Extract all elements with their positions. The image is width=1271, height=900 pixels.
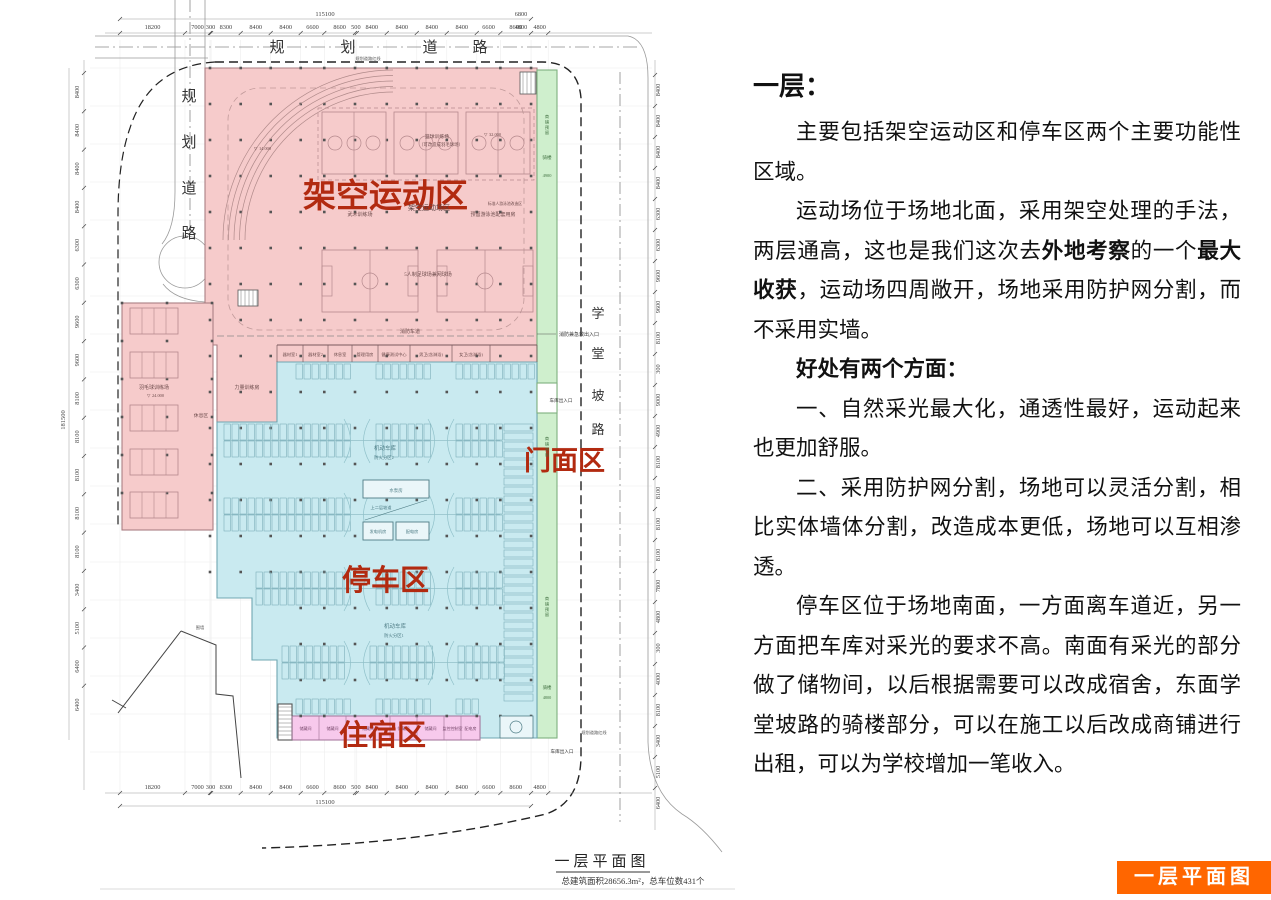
column-dot bbox=[239, 463, 242, 466]
column-dot bbox=[445, 715, 448, 718]
west-road-merge bbox=[163, 284, 205, 302]
description-panel: 一层： 主要包括架空运动区和停车区两个主要功能性区域。运动场位于场地北面，采用架… bbox=[753, 66, 1241, 785]
column-dot bbox=[209, 535, 212, 538]
column-dot bbox=[385, 499, 388, 502]
column-dot bbox=[530, 175, 533, 178]
column-dot bbox=[323, 139, 326, 142]
column-dot bbox=[299, 643, 302, 646]
dim-value: 8400 bbox=[455, 24, 468, 31]
column-dot bbox=[499, 535, 502, 538]
plan-annotation: 配电房 bbox=[406, 528, 419, 535]
column-dot bbox=[475, 427, 478, 430]
dim-value: 4000 bbox=[655, 673, 662, 686]
column-dot bbox=[445, 571, 448, 574]
column-dot bbox=[239, 139, 242, 142]
plan-annotation: 休息区 bbox=[194, 412, 209, 419]
dim-value: 5100 bbox=[655, 766, 662, 779]
column-dot bbox=[499, 103, 502, 106]
west-road-name: 路 bbox=[181, 225, 196, 242]
column-dot bbox=[239, 571, 242, 574]
fire-entrance-label: 消防兼急救出入口 bbox=[559, 331, 599, 338]
column-dot bbox=[121, 454, 124, 457]
column-dot bbox=[415, 643, 418, 646]
column-dot bbox=[239, 319, 242, 322]
column-dot bbox=[121, 492, 124, 495]
dim-value: 8100 bbox=[74, 507, 81, 520]
column-dot bbox=[354, 607, 357, 610]
column-dot bbox=[323, 427, 326, 430]
column-dot bbox=[530, 211, 533, 214]
column-dot bbox=[121, 340, 124, 343]
plan-annotation: 4900 bbox=[543, 173, 553, 178]
dim-value: 8100 bbox=[655, 487, 662, 500]
dim-value: 9600 bbox=[655, 301, 662, 314]
dim-value: 9600 bbox=[74, 316, 81, 329]
column-dot bbox=[239, 67, 242, 70]
site-boundary-southwest bbox=[112, 631, 241, 778]
column-dot bbox=[121, 378, 124, 381]
dim-total: 115100 bbox=[315, 799, 334, 806]
column-dot bbox=[299, 391, 302, 394]
column-dot bbox=[499, 67, 502, 70]
column-dot bbox=[323, 463, 326, 466]
column-dot bbox=[530, 319, 533, 322]
column-dot bbox=[269, 427, 272, 430]
dim-value: 6300 bbox=[655, 208, 662, 221]
column-dot bbox=[323, 715, 326, 718]
plan-annotation: 发电机房 bbox=[370, 528, 387, 535]
dorm-zone-label: 住宿区 bbox=[339, 718, 426, 752]
dim-value: 8100 bbox=[74, 469, 81, 482]
column-dot bbox=[323, 67, 326, 70]
column-dot bbox=[269, 391, 272, 394]
service-room-label: 器材室2 bbox=[308, 351, 323, 358]
column-dot bbox=[499, 319, 502, 322]
column-dot bbox=[354, 283, 357, 286]
dim-value: 8400 bbox=[655, 84, 662, 97]
dim-value: 7000 bbox=[191, 24, 204, 31]
plan-annotation: 32.000 bbox=[489, 132, 502, 137]
west-road-name: 规 bbox=[181, 88, 196, 105]
column-dot bbox=[323, 535, 326, 538]
column-dot bbox=[499, 427, 502, 430]
column-dot bbox=[299, 283, 302, 286]
column-dot bbox=[299, 427, 302, 430]
floor-plan: 器材室1器材室2休息室管理用房健康测试中心男卫(含淋浴)女卫(含淋浴)储藏间储藏… bbox=[0, 0, 745, 895]
column-dot bbox=[530, 247, 533, 250]
column-dot bbox=[385, 391, 388, 394]
column-dot bbox=[209, 103, 212, 106]
column-dot bbox=[166, 302, 169, 305]
text-run: 二、采用防护网分割，场地可以灵活分割，相比实体墙体分割，改造成本更低，场地可以互… bbox=[753, 476, 1241, 579]
dim-value: 8600 bbox=[333, 24, 346, 31]
column-dot bbox=[299, 607, 302, 610]
article-body: 主要包括架空运动区和停车区两个主要功能性区域。运动场位于场地北面，采用架空处理的… bbox=[753, 113, 1241, 785]
parking-zone-label: 停车区 bbox=[342, 563, 429, 597]
dim-value: 8400 bbox=[365, 784, 378, 791]
column-dot bbox=[445, 247, 448, 250]
plan-annotation: 规划道路红线 bbox=[355, 55, 381, 62]
column-dot bbox=[209, 463, 212, 466]
dim-value: 8100 bbox=[74, 545, 81, 558]
dorm-room-label: 储藏间 bbox=[425, 725, 437, 731]
plan-caption-stats: 总建筑面积28656.3m²，总车位数431个 bbox=[561, 876, 705, 886]
plan-annotation: 架空运动场区 bbox=[408, 203, 450, 212]
dim-value: 300 bbox=[655, 364, 662, 373]
dim-value: 4800 bbox=[533, 24, 546, 31]
column-dot bbox=[530, 571, 533, 574]
paragraph: 一、自然采光最大化，通透性最好，运动起来也更加舒服。 bbox=[753, 390, 1241, 469]
dim-value: 7800 bbox=[655, 580, 662, 593]
column-dot bbox=[299, 319, 302, 322]
column-dot bbox=[499, 463, 502, 466]
east-road-name: 学 bbox=[591, 306, 604, 321]
column-dot bbox=[475, 67, 478, 70]
column-dot bbox=[269, 103, 272, 106]
plan-annotation: 水泵房 bbox=[389, 487, 403, 494]
column-dot bbox=[475, 175, 478, 178]
column-dot bbox=[269, 67, 272, 70]
column-dot bbox=[211, 340, 214, 343]
column-dot bbox=[385, 67, 388, 70]
column-dot bbox=[354, 67, 357, 70]
shop-reserve-label: 留 bbox=[545, 611, 549, 618]
column-dot bbox=[445, 319, 448, 322]
dim-value: 8100 bbox=[655, 332, 662, 345]
column-dot bbox=[415, 247, 418, 250]
paragraph: 主要包括架空运动区和停车区两个主要功能性区域。 bbox=[753, 113, 1241, 192]
dim-value: 8100 bbox=[74, 392, 81, 405]
column-dot bbox=[499, 139, 502, 142]
column-dot bbox=[445, 103, 448, 106]
column-dot bbox=[415, 463, 418, 466]
dim-value: 6600 bbox=[306, 24, 319, 31]
column-dot bbox=[269, 283, 272, 286]
dim-value: 6400 bbox=[74, 699, 81, 712]
plan-annotation: 羽毛球训练场 bbox=[139, 384, 169, 391]
column-dot bbox=[299, 175, 302, 178]
column-dot bbox=[445, 499, 448, 502]
plan-caption-title: 一层平面图 bbox=[554, 853, 649, 870]
column-dot bbox=[354, 103, 357, 106]
column-dot bbox=[354, 715, 357, 718]
column-dot bbox=[530, 103, 533, 106]
dim-value: 8400 bbox=[249, 24, 262, 31]
dim-value: 6300 bbox=[74, 277, 81, 290]
column-dot bbox=[530, 283, 533, 286]
column-dot bbox=[354, 427, 357, 430]
plan-annotation: 防火分区1 bbox=[384, 632, 404, 639]
column-dot bbox=[475, 319, 478, 322]
column-dot bbox=[323, 643, 326, 646]
stair-block bbox=[278, 704, 292, 740]
column-dot bbox=[239, 535, 242, 538]
column-dot bbox=[385, 247, 388, 250]
north-road-name: 划 bbox=[340, 39, 355, 56]
column-dot bbox=[323, 499, 326, 502]
column-dot bbox=[121, 416, 124, 419]
dim-value: 6300 bbox=[655, 239, 662, 252]
column-dot bbox=[299, 211, 302, 214]
column-dot bbox=[475, 391, 478, 394]
service-room-label: 休息室 bbox=[334, 351, 347, 358]
column-dot bbox=[354, 499, 357, 502]
column-dot bbox=[415, 499, 418, 502]
column-dot bbox=[299, 67, 302, 70]
bold-run: 外地考察 bbox=[1042, 239, 1131, 263]
text-run: ，运动场四周敞开，场地采用防护网分割，而不采用实墙。 bbox=[753, 278, 1241, 342]
dim-value: 500 bbox=[351, 24, 360, 31]
text-run: 一、自然采光最大化，通透性最好，运动起来也更加舒服。 bbox=[753, 397, 1241, 461]
plan-annotation: 机动车库 bbox=[374, 444, 397, 452]
paragraph: 二、采用防护网分割，场地可以灵活分割，相比实体墙体分割，改造成本更低，场地可以互… bbox=[753, 469, 1241, 588]
column-dot bbox=[475, 247, 478, 250]
article-heading: 一层： bbox=[753, 66, 1241, 103]
plan-annotation: 防火分区2 bbox=[374, 454, 394, 461]
west-road-name: 划 bbox=[181, 134, 196, 151]
column-dot bbox=[475, 607, 478, 610]
column-dot bbox=[211, 492, 214, 495]
plan-annotation: 骑楼 bbox=[542, 154, 552, 161]
column-dot bbox=[209, 139, 212, 142]
dim-value: 8600 bbox=[333, 784, 346, 791]
dim-value: 6800 bbox=[515, 11, 528, 18]
service-room-label: 健康测试中心 bbox=[381, 351, 407, 358]
column-dot bbox=[209, 175, 212, 178]
column-dot bbox=[530, 679, 533, 682]
column-dot bbox=[354, 463, 357, 466]
north-road-name: 规 bbox=[269, 39, 284, 56]
storefront-zone-label: 门面区 bbox=[524, 446, 605, 476]
plan-annotation: 上二层坡道 bbox=[371, 504, 393, 511]
dim-value: 6600 bbox=[482, 784, 495, 791]
plan-annotation: 14.000 bbox=[259, 146, 272, 151]
dim-value: 8400 bbox=[425, 784, 438, 791]
plan-annotation: 围墙 bbox=[196, 624, 204, 631]
plan-annotation: 规划道路红线 bbox=[581, 729, 607, 736]
column-dot bbox=[530, 391, 533, 394]
column-dot bbox=[269, 319, 272, 322]
shop-reserve-label: 留 bbox=[545, 451, 549, 458]
dim-value: 500 bbox=[351, 784, 360, 791]
north-road-name: 道 bbox=[422, 39, 437, 56]
plan-annotation: 车库出入口 bbox=[550, 397, 573, 404]
plan-annotation: 5人制足球场兼网球场 bbox=[404, 271, 452, 278]
column-dot bbox=[445, 391, 448, 394]
east-road-name: 路 bbox=[591, 422, 604, 437]
column-dot bbox=[299, 535, 302, 538]
dim-value: 6300 bbox=[74, 239, 81, 252]
column-dot bbox=[209, 499, 212, 502]
plan-annotation: 预留游泳池配套用房 bbox=[470, 211, 515, 218]
service-room-label: 男卫(含淋浴) bbox=[419, 351, 443, 358]
column-dot bbox=[530, 643, 533, 646]
column-dot bbox=[385, 715, 388, 718]
column-dot bbox=[445, 535, 448, 538]
column-dot bbox=[530, 535, 533, 538]
column-dot bbox=[445, 355, 448, 358]
dim-value: 5100 bbox=[74, 622, 81, 635]
column-dot bbox=[475, 103, 478, 106]
column-dot bbox=[299, 499, 302, 502]
column-dot bbox=[385, 427, 388, 430]
paragraph: 运动场位于场地北面，采用架空处理的手法，两层通高，这也是我们这次去外地考察的一个… bbox=[753, 192, 1241, 350]
dim-value: 4800 bbox=[515, 24, 528, 31]
column-dot bbox=[499, 391, 502, 394]
dim-value: 8400 bbox=[74, 162, 81, 175]
plan-annotation: 机动车库 bbox=[384, 622, 407, 630]
dorm-room-label: 配电房 bbox=[465, 725, 477, 731]
column-dot bbox=[211, 302, 214, 305]
dim-value: 300 bbox=[206, 24, 215, 31]
dim-value: 8300 bbox=[220, 24, 233, 31]
floor-plan-drawing: 器材室1器材室2休息室管理用房健康测试中心男卫(含淋浴)女卫(含淋浴)储藏间储藏… bbox=[0, 0, 745, 895]
dim-value: 4800 bbox=[533, 784, 546, 791]
column-dot bbox=[354, 679, 357, 682]
plan-annotation: 力量训练房 bbox=[234, 384, 259, 391]
column-dot bbox=[323, 355, 326, 358]
plan-annotation: 骑楼 bbox=[543, 684, 552, 691]
column-dot bbox=[530, 355, 533, 358]
dim-value: 18200 bbox=[145, 784, 161, 791]
column-dot bbox=[415, 139, 418, 142]
column-dot bbox=[209, 391, 212, 394]
slide-badge: 一层平面图 bbox=[1117, 861, 1271, 894]
text-run: 主要包括架空运动区和停车区两个主要功能性区域。 bbox=[753, 120, 1241, 184]
plan-annotation: 24.000 bbox=[152, 393, 165, 398]
column-dot bbox=[299, 247, 302, 250]
dim-value: 6600 bbox=[482, 24, 495, 31]
column-dot bbox=[269, 247, 272, 250]
dim-value: 3400 bbox=[74, 584, 81, 597]
column-dot bbox=[385, 319, 388, 322]
column-dot bbox=[475, 499, 478, 502]
paragraph: 停车区位于场地南面，一方面离车道近，另一方面把车库对采光的要求不高。南面有采光的… bbox=[753, 587, 1241, 785]
dim-value: 8400 bbox=[395, 24, 408, 31]
column-dot bbox=[269, 463, 272, 466]
plan-annotation: 车库出入口 bbox=[551, 748, 574, 755]
north-road-name: 路 bbox=[472, 39, 487, 56]
dorm-room-label: 储藏间 bbox=[300, 725, 312, 731]
dim-value: 4900 bbox=[655, 425, 662, 438]
dim-value: 8100 bbox=[655, 456, 662, 469]
plan-annotation: 4800 bbox=[543, 695, 551, 700]
column-dot bbox=[499, 607, 502, 610]
column-dot bbox=[385, 283, 388, 286]
column-dot bbox=[445, 643, 448, 646]
plan-annotation: 篮球训练场 bbox=[425, 133, 449, 140]
column-dot bbox=[499, 499, 502, 502]
column-dot bbox=[211, 416, 214, 419]
east-road-name: 堂 bbox=[591, 346, 604, 361]
column-dot bbox=[499, 643, 502, 646]
column-dot bbox=[209, 247, 212, 250]
column-dot bbox=[209, 427, 212, 430]
column-dot bbox=[239, 247, 242, 250]
column-dot bbox=[415, 319, 418, 322]
column-dot bbox=[299, 715, 302, 718]
dim-value: 300 bbox=[655, 643, 662, 652]
dim-value: 8400 bbox=[74, 124, 81, 137]
column-dot bbox=[323, 283, 326, 286]
dim-value: 8400 bbox=[279, 784, 292, 791]
dim-value: 8400 bbox=[655, 177, 662, 190]
column-dot bbox=[269, 355, 272, 358]
dim-value: 7000 bbox=[191, 784, 204, 791]
dorm-room-label: 监控控制室 bbox=[443, 725, 463, 731]
column-dot bbox=[354, 535, 357, 538]
column-dot bbox=[499, 355, 502, 358]
column-dot bbox=[530, 67, 533, 70]
column-dot bbox=[385, 607, 388, 610]
dim-value: 300 bbox=[206, 784, 215, 791]
dim-value: 8400 bbox=[74, 201, 81, 214]
column-dot bbox=[445, 463, 448, 466]
west-road-edge bbox=[162, 0, 175, 244]
column-dot bbox=[269, 499, 272, 502]
column-dot bbox=[445, 679, 448, 682]
column-dot bbox=[415, 355, 418, 358]
column-dot bbox=[323, 607, 326, 610]
west-road-name: 道 bbox=[181, 180, 196, 197]
column-dot bbox=[354, 319, 357, 322]
column-dot bbox=[475, 463, 478, 466]
column-dot bbox=[239, 355, 242, 358]
column-dot bbox=[415, 607, 418, 610]
column-dot bbox=[209, 211, 212, 214]
zones bbox=[122, 68, 557, 740]
dim-value: 8100 bbox=[655, 549, 662, 562]
dim-value: 8400 bbox=[365, 24, 378, 31]
text-run: 停车区位于场地南面，一方面离车道近，另一方面把车库对采光的要求不高。南面有采光的… bbox=[753, 594, 1241, 776]
plan-annotation: （可改造成羽毛球场） bbox=[419, 141, 463, 148]
column-dot bbox=[354, 391, 357, 394]
column-dot bbox=[239, 283, 242, 286]
column-dot bbox=[445, 607, 448, 610]
bold-run: 好处有两个方面： bbox=[796, 357, 968, 381]
dim-total: 115100 bbox=[315, 11, 334, 18]
column-dot bbox=[269, 211, 272, 214]
column-dot bbox=[385, 103, 388, 106]
column-dot bbox=[530, 499, 533, 502]
column-dot bbox=[323, 391, 326, 394]
column-dot bbox=[475, 535, 478, 538]
column-dot bbox=[166, 340, 169, 343]
service-room-label: 女卫(含淋浴) bbox=[459, 351, 483, 358]
dim-value: 8600 bbox=[509, 784, 522, 791]
east-road-name: 坡 bbox=[591, 388, 604, 403]
paragraph: 好处有两个方面： bbox=[753, 350, 1241, 390]
column-dot bbox=[385, 643, 388, 646]
dim-value: 6600 bbox=[306, 784, 319, 791]
column-dot bbox=[209, 319, 212, 322]
plan-annotation: 消防车道 bbox=[400, 328, 420, 335]
column-dot bbox=[269, 175, 272, 178]
dim-value: 18200 bbox=[145, 24, 161, 31]
column-dot bbox=[445, 67, 448, 70]
dim-value: 6400 bbox=[74, 660, 81, 673]
column-dot bbox=[475, 139, 478, 142]
dim-value: 8400 bbox=[395, 784, 408, 791]
column-dot bbox=[211, 454, 214, 457]
column-dot bbox=[530, 427, 533, 430]
stair-block bbox=[520, 72, 536, 94]
column-dot bbox=[323, 247, 326, 250]
column-dot bbox=[209, 355, 212, 358]
dim-value: 8300 bbox=[220, 784, 233, 791]
dim-value: 8400 bbox=[249, 784, 262, 791]
dim-value: 8400 bbox=[425, 24, 438, 31]
